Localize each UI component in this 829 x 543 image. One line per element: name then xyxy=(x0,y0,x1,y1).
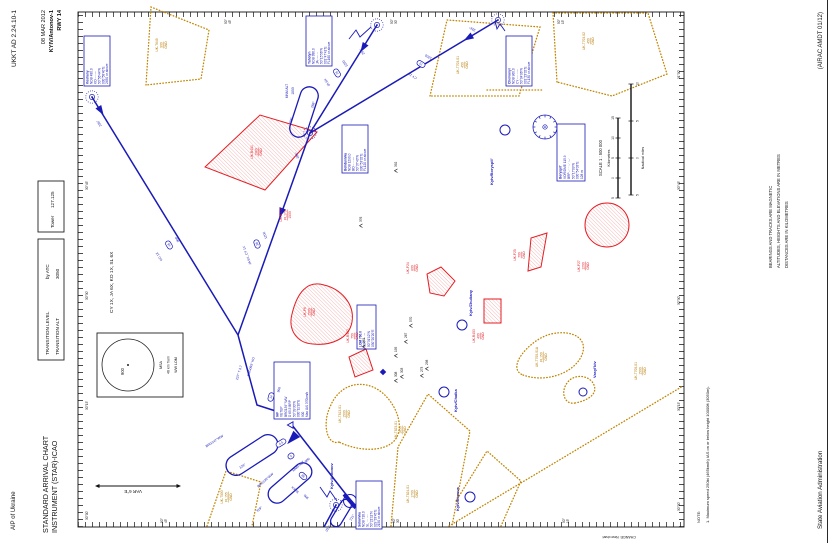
area-label-line: UK-P24 xyxy=(406,262,410,274)
transition-level-value: by ATC xyxy=(45,264,50,279)
airac-amdt: (AIRAC AMDT 01/12) xyxy=(818,12,824,69)
scale-tick-label: 5 xyxy=(636,120,640,122)
spot-elevation-icon xyxy=(360,224,363,228)
vor-rose-tick xyxy=(553,132,555,133)
route-label: 211° xyxy=(349,513,356,521)
lon-label: 30°45' xyxy=(85,181,89,190)
spot-elevation-icon xyxy=(395,379,398,383)
area-label-line: GND xyxy=(229,493,233,501)
distance-marker: 46 xyxy=(165,240,174,250)
airport-icon xyxy=(500,125,510,135)
scale-title: SCALE 1 : 500 000 xyxy=(598,139,603,176)
area-label-line: UK-T705-01 xyxy=(634,362,638,380)
msa-line: WW LOM xyxy=(174,357,178,373)
zigzag-connectors xyxy=(320,21,505,501)
vetep-fix-icon xyxy=(287,422,293,428)
navaid-box-line: FL120 or above xyxy=(363,148,367,171)
navaid-box-line: 030°20'20"E xyxy=(371,329,375,347)
note-altitudes: ALTITUDES, HEIGHTS AND ELEVATIONS ARE IN… xyxy=(776,154,781,268)
area-label: UK-T649900GND xyxy=(155,38,168,51)
area-label: UK-T703-02450GND xyxy=(582,32,595,50)
navaid-box: LOM 760.0WW ·-- ·--50°31'12"N030°20'20"E xyxy=(357,305,376,349)
airport-label: Kyiv/Buzova xyxy=(455,486,460,511)
area-label: UK-P24800GND xyxy=(406,262,419,274)
route-label: 236° xyxy=(95,119,102,127)
airport-label: Kyiv/Chaika xyxy=(453,389,458,412)
msa-value: 900 xyxy=(120,367,125,375)
distance-marker: 5 xyxy=(287,452,295,460)
lon-label: 31°00' xyxy=(677,70,681,79)
area-uk-t703-02-outline xyxy=(553,13,667,96)
airport-label: Kyiv/Boryspil' xyxy=(489,158,494,185)
area-label-line: 1080 xyxy=(254,148,258,156)
area-label: UK-T703-01450GND xyxy=(456,56,469,74)
vor-rose-tick xyxy=(535,121,537,122)
authority: State Aviation Administration xyxy=(817,450,824,529)
scale-nm-label: Nautical miles xyxy=(641,147,645,170)
area-label-line: 1500 xyxy=(288,211,292,219)
scale-tick-label: 5 xyxy=(611,157,615,159)
airport-icon xyxy=(465,492,475,502)
area-label-line: GND xyxy=(415,264,419,272)
spot-elevation-icon xyxy=(410,324,413,328)
ndb-dot xyxy=(91,96,93,98)
area-label-line: GND xyxy=(522,251,526,259)
area-label-line: UK-R452 xyxy=(346,329,350,343)
vor-dot xyxy=(544,126,546,128)
scale-tick-label: 5 xyxy=(611,197,615,199)
area-label-line: UK-R451 xyxy=(250,145,254,159)
hold-brg147 xyxy=(222,431,282,479)
rotated-page: AIP of Ukraine STANDARD ARRIVAL CHART IN… xyxy=(0,0,829,543)
route-label: 1200 xyxy=(341,59,348,67)
spot-elevation-icon xyxy=(426,367,429,371)
area-label-line: UK-T705-01A xyxy=(535,346,539,367)
area-label-line: UK-T823-01 xyxy=(394,421,398,439)
msa-line: 46 km from xyxy=(167,356,171,374)
lat-label: 15' xyxy=(566,518,570,523)
change-note: CHANGE: New chart xyxy=(602,535,636,539)
route-label: KO 1X xyxy=(155,251,164,262)
vor-rose-icon xyxy=(533,115,557,139)
ndb-icon xyxy=(86,91,98,103)
lat-label: 15' xyxy=(561,19,565,24)
area-label-line: 450 xyxy=(460,62,464,68)
area-uk-r772-p6 xyxy=(291,284,352,344)
route-label: 900 xyxy=(304,457,311,464)
area-label-line: GND xyxy=(355,332,359,340)
tower-value: 127.125 xyxy=(50,191,55,208)
arrow-tip-icon xyxy=(177,484,182,488)
navaid-box: BohdanivkaNDB 1290.0BO -··· ---50°37'43"… xyxy=(342,125,368,173)
spot-elevation: 303 xyxy=(400,367,404,373)
area-label-line: GND xyxy=(465,61,469,69)
spot-elevation-icon xyxy=(395,169,398,173)
spot-elevation-icon xyxy=(421,374,424,378)
spot-elevation: 570 xyxy=(409,316,413,322)
area-label-line: 800 xyxy=(410,265,414,271)
scale-tick-label: 15 xyxy=(611,116,615,120)
vor-rose-tick xyxy=(550,117,551,119)
area-label-line: 1850 xyxy=(398,426,402,434)
note-distances: DISTANCES ARE IN KILOMETRES xyxy=(784,201,789,268)
town-label: Vasyl'kiv xyxy=(592,360,597,378)
airport-title: KYIV/Antonov-1 xyxy=(49,10,55,52)
lon-label: 30°30' xyxy=(85,291,89,300)
spot-elevation: 261 xyxy=(362,337,366,343)
lon-label: 30°15' xyxy=(85,401,89,410)
lon-label: 30°00' xyxy=(677,502,681,511)
lon-label: 30°15' xyxy=(677,402,681,411)
area-label-line: GND xyxy=(415,490,419,498)
area-uk-t500-outline xyxy=(207,471,261,526)
arrow-icon xyxy=(462,33,474,44)
navaid-box-line: Max IAS 370km/h xyxy=(305,392,309,417)
route-label: 319° xyxy=(255,505,263,513)
area-label-line: GND xyxy=(586,262,590,270)
navaid-box: KoshanyNDB 480.0KO -·- ---50°56'44"N030°… xyxy=(84,36,110,86)
area-label-line: 900 xyxy=(159,42,163,48)
area-uk-p25 xyxy=(528,233,547,271)
spot-elevation: 308 xyxy=(394,371,398,377)
area-label: UK-P25700GND xyxy=(513,249,526,261)
area-label-line: GND xyxy=(403,426,407,434)
spot-elevation-icon xyxy=(405,340,408,344)
town-icon xyxy=(579,388,587,396)
vor-rose-tick xyxy=(535,132,537,133)
ndb-dot xyxy=(309,132,311,134)
area-label-line: 450 xyxy=(586,38,590,44)
navaid-box-line: FL160 or above xyxy=(327,41,331,64)
area-label-line: UK-T649 xyxy=(155,38,159,51)
ndb-icon xyxy=(371,19,383,31)
navaid-box: Boryspil'VOR/DME 115.9BRP -··· ·-· ·--·5… xyxy=(557,124,585,181)
navaid-box: SolovivkaNDB 718.0SL ··· ·-··50°21'11"N0… xyxy=(356,481,382,529)
var-label: VAR 6°E xyxy=(124,489,142,494)
area-label-line: UK-T703-02 xyxy=(582,32,586,50)
boundary-diagonal xyxy=(449,386,683,526)
arrow-tip-icon xyxy=(95,484,100,488)
distance-marker: 14 xyxy=(267,392,274,402)
navaid-box: YahotynNDB 386.0JA ·--- ·-50°15'56"N031°… xyxy=(306,16,332,66)
area-label-line: 1200 xyxy=(581,262,585,270)
scale-tick-label: 10 xyxy=(636,82,640,86)
airport-circle xyxy=(500,125,510,135)
lon-label: 30°45' xyxy=(677,181,681,190)
route-label: MNM ALT xyxy=(285,84,289,98)
airport-label: Kyiv/Antonov xyxy=(329,462,334,489)
area-uk-t705-01a-outline xyxy=(517,333,584,378)
area-label-line: FL150 xyxy=(539,352,543,362)
navaid-box-line: 2450 or above xyxy=(105,63,109,84)
area-label: UK-T824-011700GND xyxy=(406,485,419,503)
area-label-line: UK-R772 xyxy=(279,208,283,222)
airport-icon xyxy=(457,320,467,330)
airport-circle xyxy=(457,320,467,330)
area-uk-p27 xyxy=(585,203,629,247)
msa-center-dot xyxy=(127,364,129,366)
effective-date: 08 MAR 2012 xyxy=(41,10,47,44)
spot-elevation: 273 xyxy=(420,366,424,372)
route-label: 900 xyxy=(303,493,310,500)
spot-elevation: 267 xyxy=(404,332,408,338)
spot-elevation: 195 xyxy=(394,346,398,352)
lat-label: 30' xyxy=(396,518,400,523)
star-chart-svg: AIP of Ukraine STANDARD ARRIVAL CHART IN… xyxy=(0,0,829,543)
route-label: 1200 xyxy=(262,231,268,239)
scale-tick-label: 0 xyxy=(636,157,640,159)
route-label: 1850 xyxy=(291,87,295,95)
area-label: UK-T705-01AFL150GND xyxy=(535,346,548,367)
tower-label: Tower xyxy=(50,215,55,228)
transition-alt-label: TRANSITION ALT xyxy=(55,318,60,355)
aip-title: AIP of Ukraine xyxy=(11,491,17,530)
area-label-line: GND xyxy=(259,148,263,156)
area-label-line: GND xyxy=(544,353,548,361)
area-label-line: UK-T824-01 xyxy=(406,485,410,503)
transition-alt-value: 3050 xyxy=(55,268,60,279)
route-label: BRG055° KO xyxy=(246,356,255,376)
area-label-line: GND xyxy=(164,41,168,49)
lat-label: 30' xyxy=(394,19,398,24)
airport-circle xyxy=(439,387,449,397)
route-label: 900 xyxy=(174,236,180,243)
lon-label: 30°00' xyxy=(85,511,89,520)
route-label: BRG147°WW xyxy=(205,434,225,449)
doc-ref: UKKT AD 2.24.10-1 xyxy=(11,10,18,67)
area-label-line: UK-P6 xyxy=(303,307,307,317)
navaid-box-line: FL130 or above xyxy=(527,61,531,84)
lat-label: 45' xyxy=(228,19,232,24)
lat-label: 45' xyxy=(164,518,168,523)
ndb-dot xyxy=(497,19,499,21)
area-label-line: 700 xyxy=(517,252,521,258)
airport-label: Kyiv/Zhuliany xyxy=(468,289,473,316)
area-label: UK-T705-011500GND xyxy=(634,362,647,380)
glider-site-icon xyxy=(380,369,387,376)
area-label-line: FL170 xyxy=(283,210,287,220)
vor-rose-tick xyxy=(550,135,551,137)
area-label-line: UK-T813-01 xyxy=(338,405,342,423)
area-label-line: 750 xyxy=(350,333,354,339)
spot-elevation: 376 xyxy=(359,216,363,222)
area-label-line: GND xyxy=(591,37,595,45)
map-frame xyxy=(78,12,684,527)
vor-rose-tick xyxy=(539,135,540,137)
lon-label: 30°30' xyxy=(677,296,681,305)
area-label: UK-P271200GND xyxy=(577,260,590,272)
zigzag-solovivka xyxy=(320,487,337,501)
route-label: 326° xyxy=(468,25,476,32)
route-label: MNM ALT xyxy=(292,460,306,472)
area-label-line: UK-P27 xyxy=(577,260,581,272)
zigzag-yahotyn xyxy=(349,27,371,39)
note-bearings: BEARINGS AND TRACKS ARE MAGNETIC xyxy=(768,186,773,268)
area-label: UK-P61500GND xyxy=(303,307,316,317)
route-label: JA 6X xyxy=(323,77,331,87)
distance-marker: 72 xyxy=(416,60,426,69)
area-label-line: GND xyxy=(643,367,647,375)
spot-elevation-icon xyxy=(395,354,398,358)
area-label-line: 1500 xyxy=(342,410,346,418)
spot-elevation: 298 xyxy=(425,359,429,365)
ndb-icon xyxy=(330,499,342,511)
area-label-line: UK-T500 xyxy=(220,490,224,503)
airport-circle xyxy=(465,492,475,502)
chart-sheet: AIP of Ukraine STANDARD ARRIVAL CHART IN… xyxy=(0,0,829,543)
area-label: UK-T500FL155GND xyxy=(220,490,233,503)
scale-tick-label: 10 xyxy=(611,136,615,140)
area-label: UK-T813-011500GND xyxy=(338,405,351,423)
star-designators: CY 1X, JA 6X, KO 1X, SL 6X xyxy=(109,251,115,313)
area-uk-r452 xyxy=(349,349,373,377)
area-label-line: GND xyxy=(347,410,351,418)
airport-icon xyxy=(439,387,449,397)
route-label: 237° T 3.7 xyxy=(235,365,243,381)
area-label-line: 1500 xyxy=(307,308,311,316)
area-label-line: 400 xyxy=(476,333,480,339)
distance-marker: 98 xyxy=(298,471,308,481)
scale-tick-label: 0 xyxy=(611,177,615,179)
area-label-line: UK-P25 xyxy=(513,249,517,261)
transition-level-label: TRANSITION LEVEL xyxy=(45,311,50,355)
area-label-line: FL155 xyxy=(224,492,228,502)
scale-tick-label: 5 xyxy=(636,194,640,196)
area-uk-p24 xyxy=(427,267,455,296)
area-label-line: 1700 xyxy=(410,490,414,498)
spot-elevation-icon xyxy=(401,375,404,379)
distance-marker: 76 xyxy=(333,68,342,78)
note-heading: NOTE: xyxy=(696,511,701,523)
area-label: UK-R772FL1701500 xyxy=(279,208,292,222)
route-label: CY 1X xyxy=(407,71,418,80)
msa-line: MSA xyxy=(159,361,163,369)
area-uk-r453 xyxy=(484,299,501,323)
variation-arrow xyxy=(95,484,181,488)
chart-title-line2: INSTRUMENT (STAR)-ICAO xyxy=(50,440,59,533)
route-label: JA 6X, CY 1X xyxy=(242,245,253,266)
spot-elevation: 392 xyxy=(394,161,398,167)
ndb-dot xyxy=(335,504,337,506)
msa-box: 900 MSA 46 km from WW LOM xyxy=(97,333,183,397)
route-label: 139° xyxy=(239,462,247,469)
note-line: 1. Maximum speed 250kt (465km/h) IAS on … xyxy=(705,386,710,523)
route-label: 1200 xyxy=(424,53,432,60)
area-label-line: 1500 xyxy=(638,367,642,375)
distance-marker: 38 xyxy=(253,239,261,249)
area-label-line: UK-T703-01 xyxy=(456,56,460,74)
vor-rose-tick xyxy=(539,117,540,119)
ndb-dot xyxy=(376,24,378,26)
area-label: UK-T823-011850GND xyxy=(394,421,407,439)
navaid-box-line: 128 m xyxy=(580,170,584,179)
vor-rose-tick xyxy=(553,121,555,122)
map-labels-layer: 30°00'30°15'30°30'30°45'30°00'30°15'30°3… xyxy=(84,14,681,533)
transition-box xyxy=(38,239,64,360)
navaid-box-line: 2150 or above xyxy=(377,506,381,527)
navaid-box: ChervonyiNDB 960.0CY -·-· -·--50°04'06"N… xyxy=(506,36,532,86)
area-label: UK-R453400GND xyxy=(472,329,485,343)
runway-title: RWY 14 xyxy=(57,9,63,31)
chart-title-line1: STANDARD ARRIVAL CHART xyxy=(41,435,50,533)
area-label-line: GND xyxy=(312,308,316,316)
airport-icon xyxy=(343,493,358,509)
area-label-line: GND xyxy=(481,332,485,340)
area-label-line: UK-R453 xyxy=(472,329,476,343)
